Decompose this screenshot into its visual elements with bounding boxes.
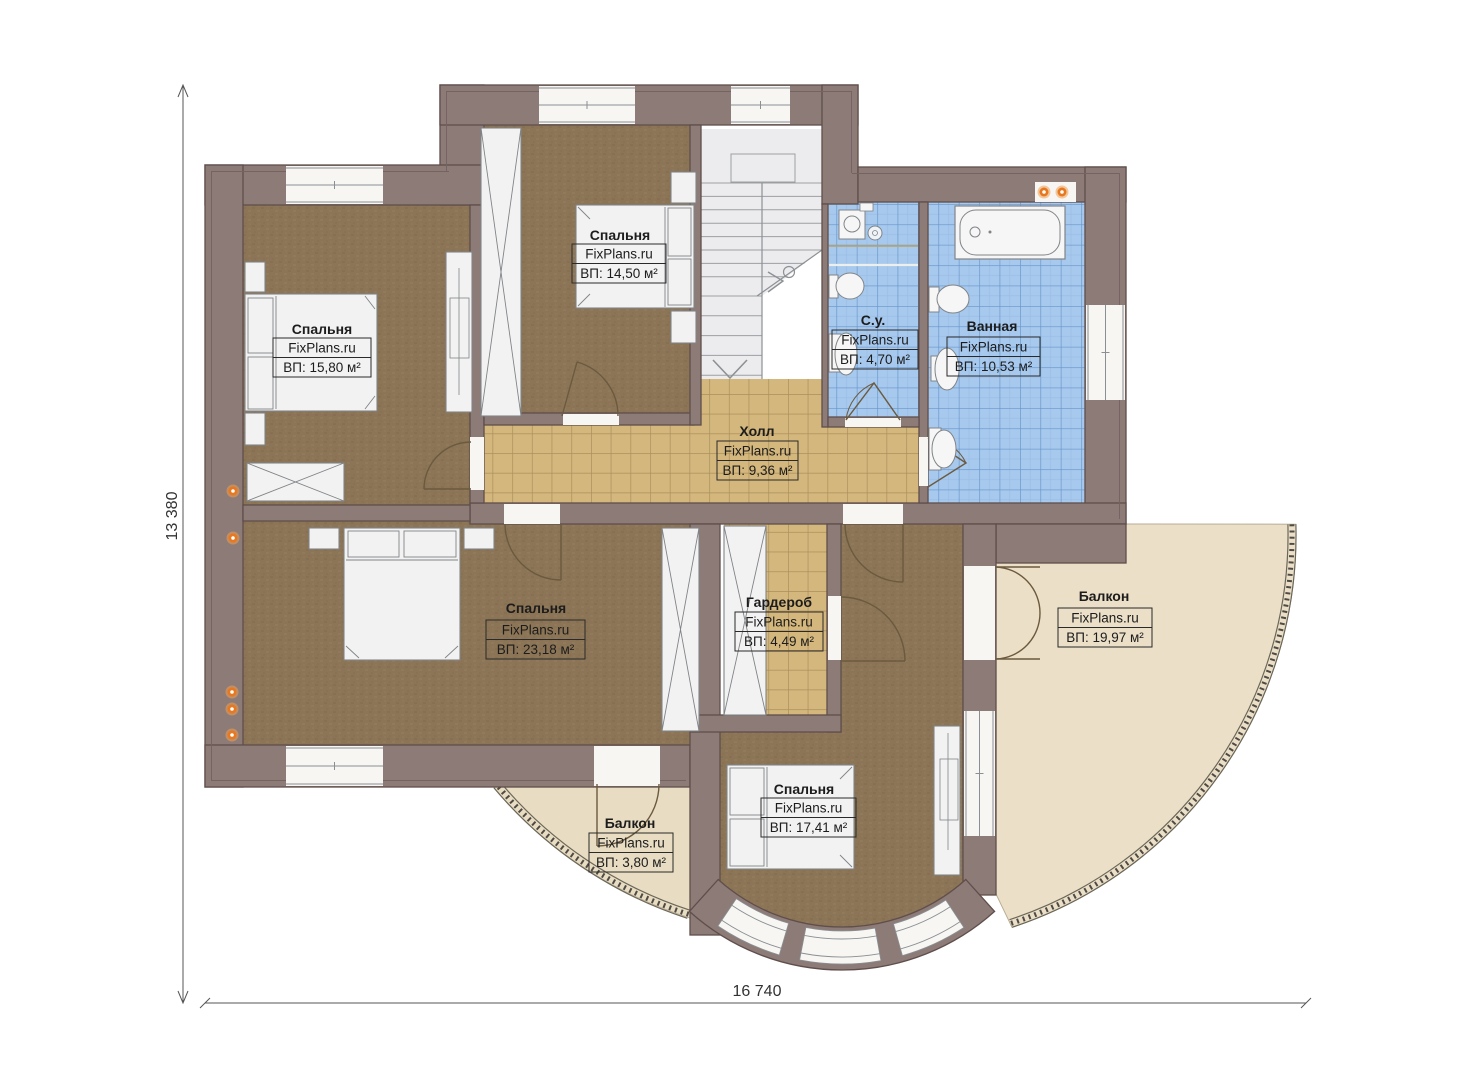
svg-text:FixPlans.ru: FixPlans.ru <box>597 836 665 851</box>
svg-text:Гардероб: Гардероб <box>746 594 813 610</box>
svg-text:ВП: 10,53 м²: ВП: 10,53 м² <box>955 359 1033 374</box>
svg-text:FixPlans.ru: FixPlans.ru <box>502 623 570 638</box>
svg-text:FixPlans.ru: FixPlans.ru <box>585 247 653 262</box>
svg-text:FixPlans.ru: FixPlans.ru <box>775 801 843 816</box>
svg-text:FixPlans.ru: FixPlans.ru <box>841 333 909 348</box>
svg-text:Спальня: Спальня <box>590 227 650 243</box>
svg-text:Спальня: Спальня <box>506 600 566 616</box>
svg-text:FixPlans.ru: FixPlans.ru <box>288 341 356 356</box>
svg-text:Ванная: Ванная <box>967 318 1018 334</box>
svg-text:Спальня: Спальня <box>292 321 352 337</box>
svg-text:FixPlans.ru: FixPlans.ru <box>1071 611 1139 626</box>
svg-text:FixPlans.ru: FixPlans.ru <box>745 615 813 630</box>
svg-text:FixPlans.ru: FixPlans.ru <box>960 340 1028 355</box>
svg-text:ВП: 4,70 м²: ВП: 4,70 м² <box>840 352 911 367</box>
svg-text:Балкон: Балкон <box>1079 588 1130 604</box>
svg-text:Балкон: Балкон <box>605 815 656 831</box>
svg-text:ВП: 15,80 м²: ВП: 15,80 м² <box>283 360 361 375</box>
svg-text:16 740: 16 740 <box>733 983 782 1000</box>
svg-text:ВП: 23,18 м²: ВП: 23,18 м² <box>497 642 575 657</box>
svg-text:FixPlans.ru: FixPlans.ru <box>724 444 792 459</box>
svg-text:Холл: Холл <box>739 423 774 439</box>
svg-text:ВП: 9,36 м²: ВП: 9,36 м² <box>722 463 793 478</box>
svg-text:ВП: 17,41 м²: ВП: 17,41 м² <box>770 820 848 835</box>
svg-text:ВП: 4,49 м²: ВП: 4,49 м² <box>744 634 815 649</box>
svg-text:ВП: 19,97 м²: ВП: 19,97 м² <box>1066 630 1144 645</box>
svg-text:ВП: 14,50 м²: ВП: 14,50 м² <box>580 266 658 281</box>
svg-text:ВП: 3,80 м²: ВП: 3,80 м² <box>596 855 667 870</box>
svg-text:С.у.: С.у. <box>861 312 885 328</box>
svg-text:13 380: 13 380 <box>164 491 181 540</box>
svg-text:Спальня: Спальня <box>774 781 834 797</box>
